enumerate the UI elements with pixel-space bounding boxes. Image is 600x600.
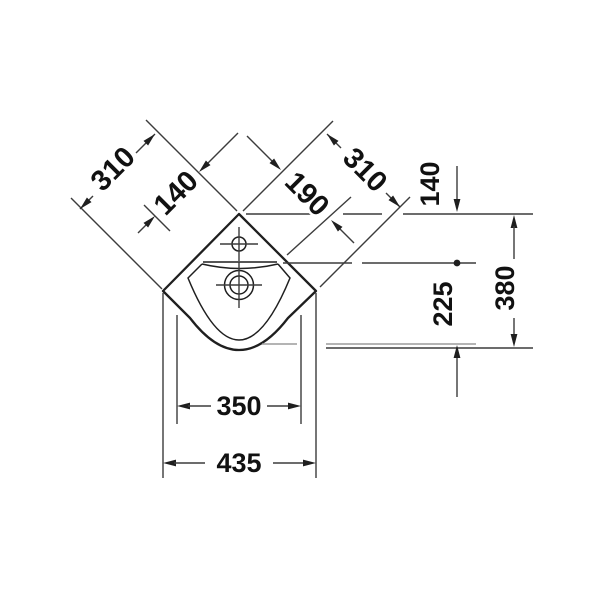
dim-label-side-380: 380: [490, 265, 520, 310]
dot-terminator: [454, 260, 461, 267]
dim-label-side-225: 225: [428, 281, 458, 326]
dim-label-bottom-350: 350: [216, 391, 261, 421]
dim-label-side-140: 140: [415, 161, 445, 206]
technical-drawing-canvas: 310 140 190 310 140 225: [0, 0, 600, 600]
technical-drawing-page: 310 140 190 310 140 225: [0, 0, 600, 600]
dim-label-bottom-435: 435: [216, 448, 261, 478]
